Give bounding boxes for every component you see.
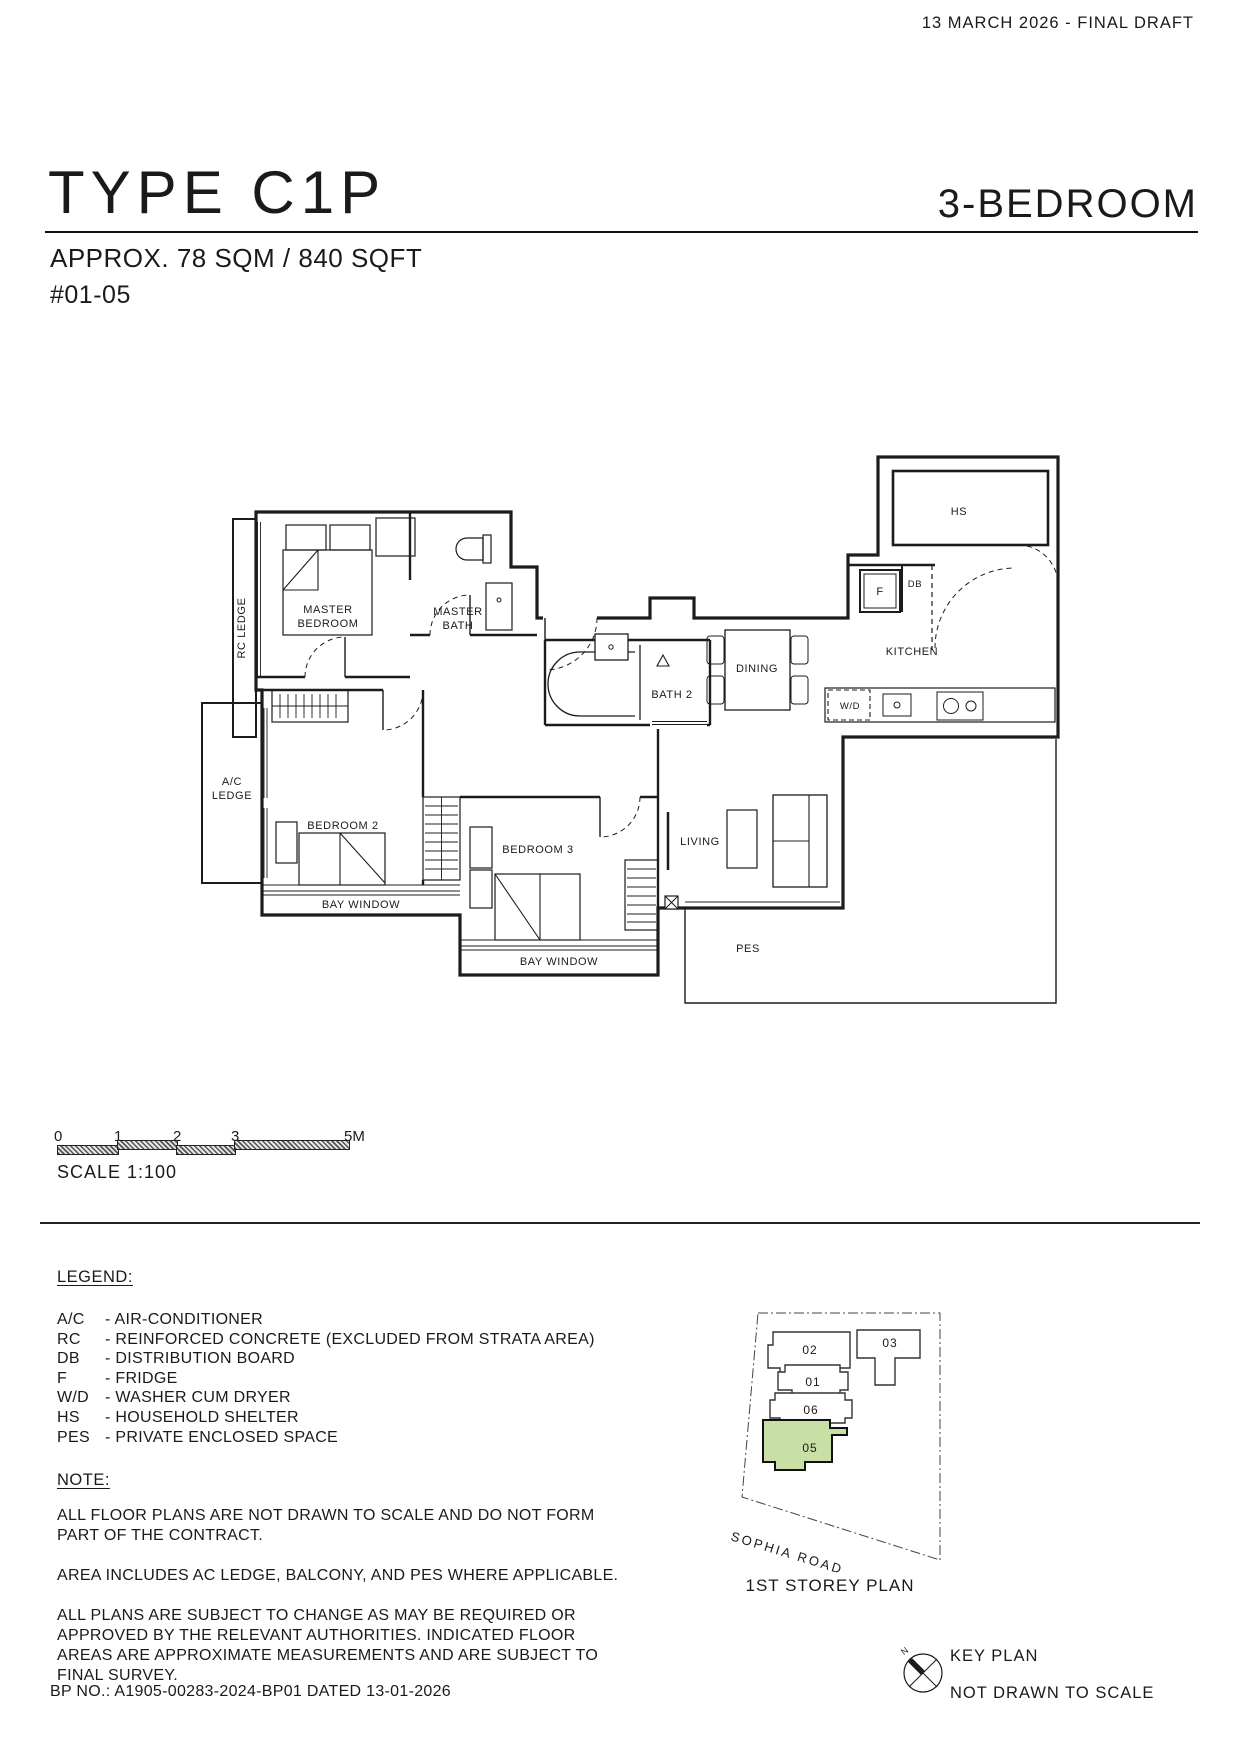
legend-abbr: F	[57, 1369, 105, 1389]
room-label-rc-ledge: RC LEDGE	[236, 597, 248, 658]
scale-segment	[57, 1145, 119, 1155]
title-divider	[45, 231, 1198, 233]
room-label-hs: HS	[951, 506, 967, 518]
legend-desc: - FRIDGE	[105, 1369, 178, 1389]
legend-heading: LEGEND:	[57, 1268, 133, 1287]
scale-tick: 0	[54, 1128, 62, 1145]
legend-item: DB - DISTRIBUTION BOARD	[57, 1349, 617, 1369]
legend-item: F - FRIDGE	[57, 1369, 617, 1389]
room-label-dining: DINING	[736, 663, 778, 675]
legend-item: PES - PRIVATE ENCLOSED SPACE	[57, 1428, 617, 1448]
legend-desc: - PRIVATE ENCLOSED SPACE	[105, 1428, 338, 1448]
room-label-bath2: BATH 2	[651, 689, 692, 701]
keyplan-unit-label-02: 02	[802, 1343, 817, 1357]
legend-desc: - REINFORCED CONCRETE (EXCLUDED FROM STR…	[105, 1330, 595, 1350]
keyplan-unit-label-05: 05	[802, 1441, 817, 1455]
note-paragraph: ALL PLANS ARE SUBJECT TO CHANGE AS MAY B…	[57, 1606, 622, 1686]
compass-icon: N	[897, 1643, 949, 1699]
keyplan-unit-label-06: 06	[803, 1403, 818, 1417]
keyplan-unit-label-01: 01	[805, 1375, 820, 1389]
legend-item: A/C - AIR-CONDITIONER	[57, 1310, 617, 1330]
note-paragraph: ALL FLOOR PLANS ARE NOT DRAWN TO SCALE A…	[57, 1506, 622, 1546]
legend-abbr: W/D	[57, 1388, 105, 1408]
area-label: APPROX. 78 SQM / 840 SQFT	[50, 243, 422, 274]
note-heading: NOTE:	[57, 1471, 110, 1490]
room-label-bedroom3: BEDROOM 3	[502, 844, 573, 856]
brochure-page: 13 MARCH 2026 - FINAL DRAFT TYPE C1P 3-B…	[0, 0, 1240, 1755]
room-label-bay-window-2: BAY WINDOW	[520, 956, 598, 968]
room-label-master-bath-1: MASTER	[433, 606, 482, 618]
scale-segment	[176, 1145, 236, 1155]
draft-date-note: 13 MARCH 2026 - FINAL DRAFT	[922, 14, 1194, 33]
scale-segment	[234, 1140, 350, 1150]
section-divider	[40, 1222, 1200, 1224]
legend-abbr: DB	[57, 1349, 105, 1369]
legend-abbr: PES	[57, 1428, 105, 1448]
legend: LEGEND: A/C - AIR-CONDITIONER RC - REINF…	[57, 1268, 133, 1287]
room-label-master-bath-2: BATH	[443, 620, 474, 632]
household-shelter-room	[893, 471, 1048, 545]
legend-item: HS - HOUSEHOLD SHELTER	[57, 1408, 617, 1428]
compass-north-label: N	[899, 1645, 910, 1657]
room-label-ac-ledge-1: A/C	[222, 776, 242, 788]
room-label-wd: W/D	[840, 701, 860, 712]
room-label-pes: PES	[736, 943, 760, 955]
keyplan-title: KEY PLAN	[950, 1647, 1038, 1666]
room-label-db: DB	[908, 579, 922, 590]
road-label: SOPHIA ROAD	[729, 1529, 845, 1578]
legend-abbr: RC	[57, 1330, 105, 1350]
not-drawn-to-scale-label: NOT DRAWN TO SCALE	[950, 1684, 1154, 1703]
key-plan-drawing: 02 03 01 06 05 SOPHIA ROAD	[680, 1290, 1020, 1610]
floor-plan-drawing: RC LEDGE MASTER BEDROOM MASTER BATH BATH…	[195, 450, 1070, 1015]
keyplan-unit-label-03: 03	[882, 1336, 897, 1350]
room-label-kitchen: KITCHEN	[886, 646, 938, 658]
bath2-sink	[595, 634, 628, 660]
room-label-master-bedroom-1: MASTER	[303, 604, 352, 616]
room-label-bay-window-1: BAY WINDOW	[322, 899, 400, 911]
unit-number: #01-05	[50, 281, 131, 310]
legend-desc: - AIR-CONDITIONER	[105, 1310, 263, 1330]
scale-segment	[117, 1140, 178, 1150]
legend-abbr: HS	[57, 1408, 105, 1428]
storey-plan-caption: 1ST STOREY PLAN	[700, 1576, 960, 1596]
legend-abbr: A/C	[57, 1310, 105, 1330]
page-title: TYPE C1P	[48, 158, 386, 227]
legend-item: RC - REINFORCED CONCRETE (EXCLUDED FROM …	[57, 1330, 617, 1350]
scale-label: SCALE 1:100	[57, 1162, 177, 1183]
legend-item: W/D - WASHER CUM DRYER	[57, 1388, 617, 1408]
room-label-ac-ledge-2: LEDGE	[212, 790, 252, 802]
legend-desc: - WASHER CUM DRYER	[105, 1388, 291, 1408]
scale-bar: 0 1 2 3 5M	[50, 1128, 370, 1160]
room-label-master-bedroom-2: BEDROOM	[297, 618, 358, 630]
bedroom-count-label: 3-BEDROOM	[938, 182, 1198, 227]
bp-number-line: BP NO.: A1905-00283-2024-BP01 DATED 13-0…	[50, 1683, 451, 1701]
legend-desc: - HOUSEHOLD SHELTER	[105, 1408, 299, 1428]
note-paragraph: AREA INCLUDES AC LEDGE, BALCONY, AND PES…	[57, 1566, 622, 1586]
note-section: NOTE: ALL FLOOR PLANS ARE NOT DRAWN TO S…	[57, 1471, 110, 1490]
legend-desc: - DISTRIBUTION BOARD	[105, 1349, 295, 1369]
room-label-bedroom2: BEDROOM 2	[307, 820, 378, 832]
room-label-fridge: F	[876, 586, 883, 598]
room-label-living: LIVING	[680, 836, 720, 848]
